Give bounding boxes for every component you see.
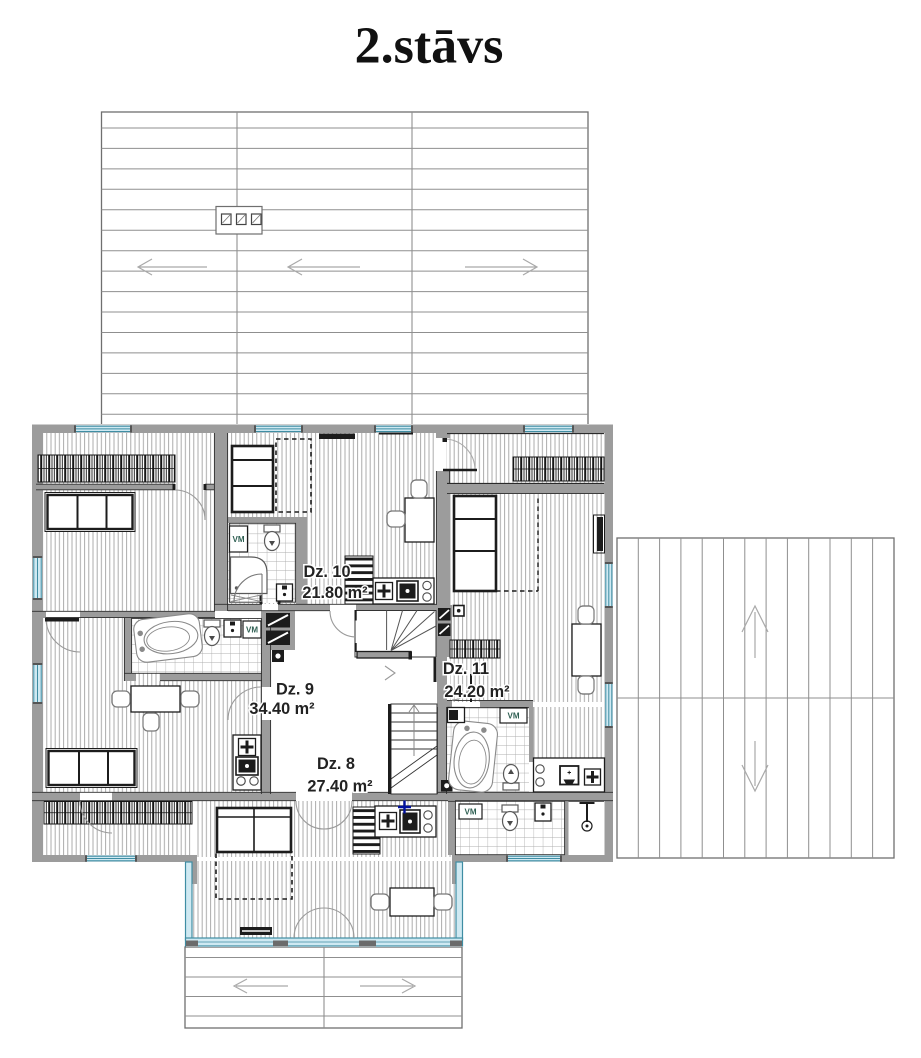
svg-text:VM: VM	[465, 807, 477, 816]
svg-text:VM: VM	[233, 535, 245, 544]
svg-text:21.80 m²: 21.80 m²	[302, 584, 368, 602]
svg-text:Dz. 9: Dz. 9	[276, 681, 314, 699]
svg-text:VM: VM	[246, 625, 258, 634]
svg-text:2.stāvs: 2.stāvs	[355, 18, 504, 75]
svg-text:24.20 m²: 24.20 m²	[444, 683, 510, 701]
svg-text:Dz. 10: Dz. 10	[303, 563, 350, 581]
svg-text:34.40 m²: 34.40 m²	[249, 700, 315, 718]
svg-text:Dz. 11: Dz. 11	[443, 660, 489, 678]
svg-text:Dz. 8: Dz. 8	[317, 755, 355, 773]
svg-text:VM: VM	[508, 711, 520, 720]
svg-text:27.40 m²: 27.40 m²	[307, 778, 373, 796]
